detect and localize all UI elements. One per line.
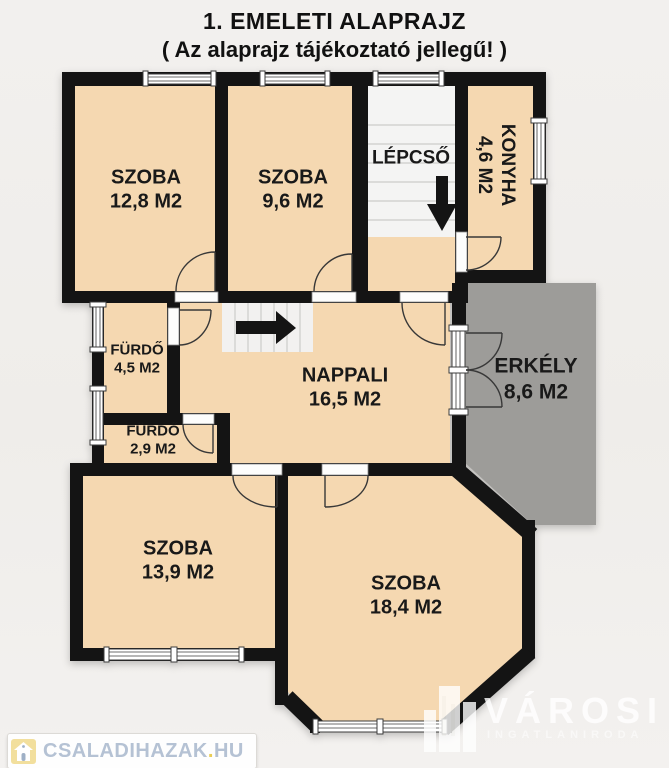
plan-title: 1. EMELETI ALAPRAJZ ( Az alaprajz tájéko…	[0, 8, 669, 63]
room-label-furdo-4-5: FÜRDŐ 4,5 M2	[110, 342, 163, 379]
room-label-furdo-2-9: FÜRDŐ 2,9 M2	[126, 423, 179, 460]
house-icon	[11, 739, 36, 764]
varosi-sub-text: INGATLANIRODA	[487, 729, 643, 741]
room-label-szoba-9-6: SZOBA 9,6 M2	[258, 166, 328, 215]
room-label-lepcso: LÉPCSŐ	[372, 146, 450, 169]
floor-plan-image: 1. EMELETI ALAPRAJZ ( Az alaprajz tájéko…	[0, 0, 669, 768]
buildings-icon	[424, 686, 476, 752]
page-subtitle: ( Az alaprajz tájékoztató jellegű! )	[0, 37, 669, 63]
room-label-erkely: ERKÉLY 8,6 M2	[494, 353, 577, 404]
varosi-brand-text: VÁROSI	[484, 690, 664, 732]
room-label-nappali: NAPPALI 16,5 M2	[302, 364, 388, 413]
room-label-szoba-13-9: SZOBA 13,9 M2	[142, 537, 214, 586]
page-title: 1. EMELETI ALAPRAJZ	[0, 8, 669, 35]
staircase-lower	[222, 303, 313, 352]
csaladihazak-text: CSALADIHAZAK.HU	[43, 740, 244, 763]
room-label-szoba-12-8: SZOBA 12,8 M2	[110, 166, 182, 215]
room-label-konyha: KONYHA 4,6 M2	[473, 124, 519, 206]
room-label-szoba-18-4: SZOBA 18,4 M2	[370, 572, 442, 621]
csaladihazak-watermark: CSALADIHAZAK.HU	[7, 733, 257, 768]
